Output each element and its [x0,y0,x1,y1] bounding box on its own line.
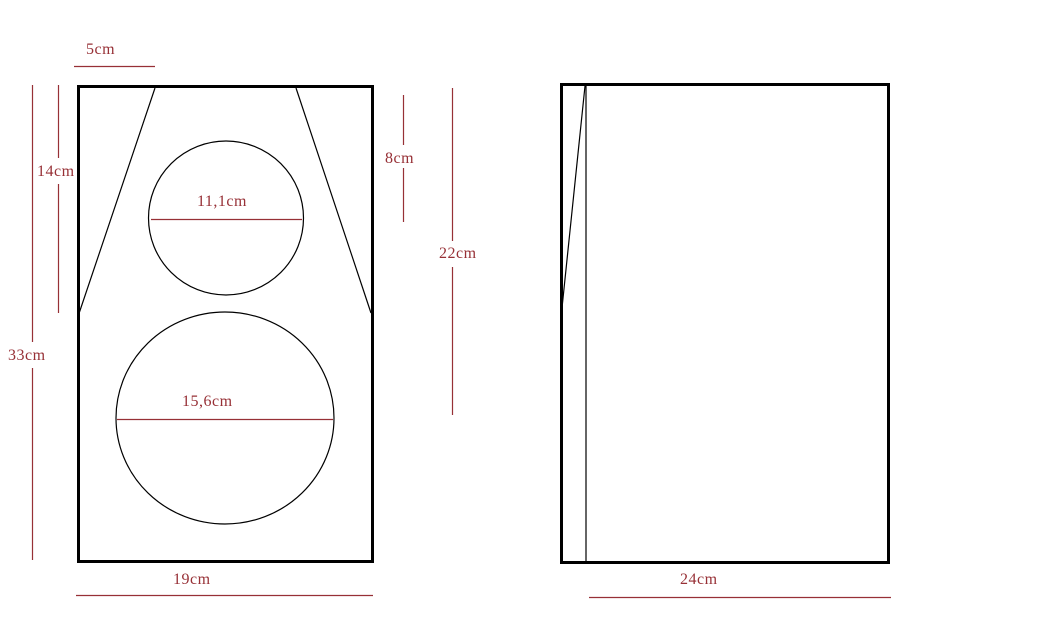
svg-text:11,1cm: 11,1cm [197,193,247,210]
svg-text:14cm: 14cm [37,163,75,180]
svg-text:24cm: 24cm [680,571,718,588]
svg-text:19cm: 19cm [173,571,211,588]
svg-text:5cm: 5cm [86,41,115,58]
svg-text:33cm: 33cm [8,347,46,364]
svg-text:15,6cm: 15,6cm [182,393,233,410]
svg-text:8cm: 8cm [385,150,414,167]
svg-text:22cm: 22cm [439,245,477,262]
